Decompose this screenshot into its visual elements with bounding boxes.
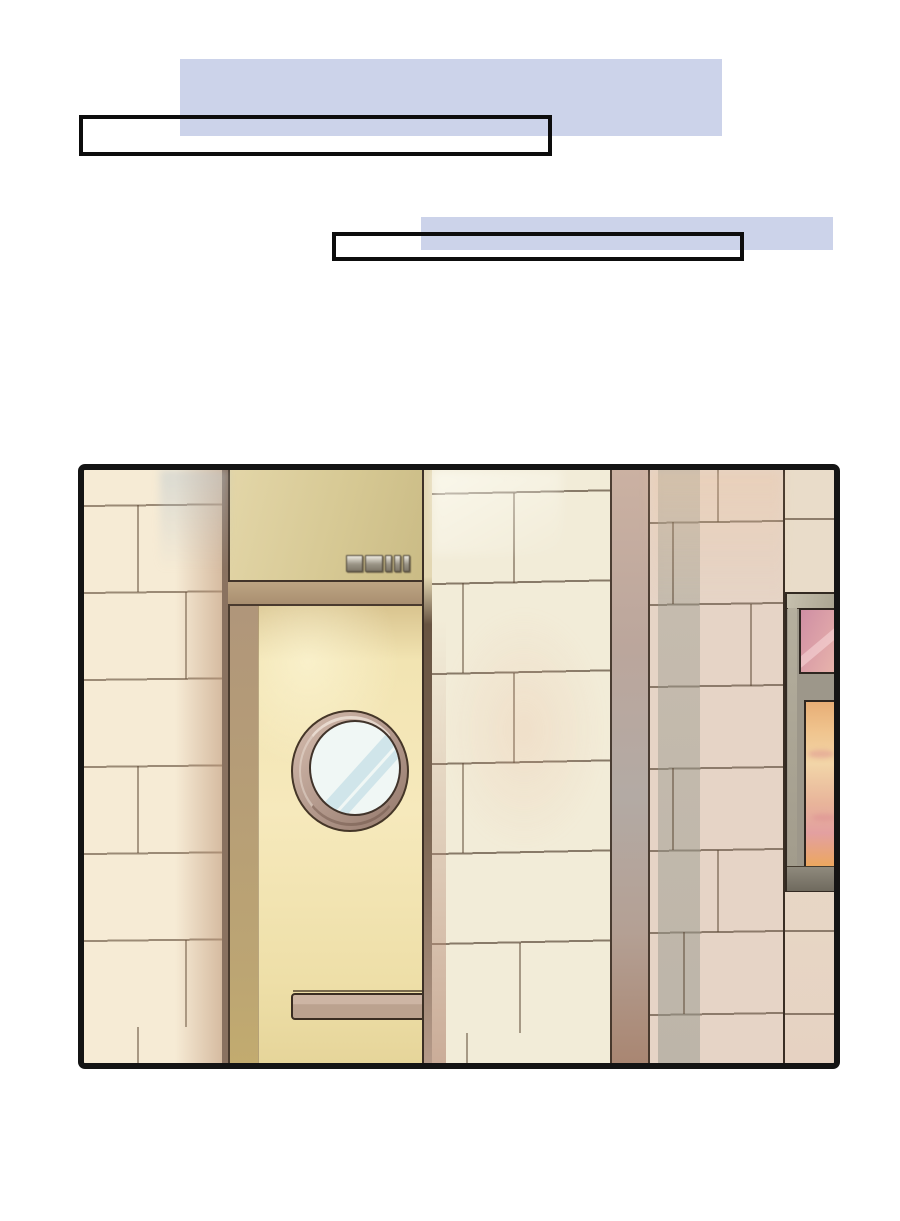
poster-pink	[799, 608, 836, 674]
tile-joint	[462, 583, 464, 673]
speech-bubble-2	[332, 232, 744, 261]
door-frame-left-jamb	[228, 606, 258, 1063]
poster-reflection	[799, 609, 836, 667]
tile-joint	[137, 766, 139, 853]
sign-glyph	[403, 555, 410, 572]
tile-line	[785, 518, 836, 520]
poster-cloud	[808, 750, 834, 758]
poster-sunset	[804, 700, 838, 868]
porthole-window	[309, 720, 401, 816]
tiled-wall-left	[84, 470, 228, 1063]
display-frame	[785, 592, 836, 892]
wall-right-column	[783, 470, 834, 1063]
tile-joint	[462, 763, 464, 853]
speech-bubble-2-text	[336, 236, 740, 257]
door-frame-right-post	[422, 470, 432, 1063]
display-frame-top-bevel	[787, 594, 836, 609]
speech-bubble-1-text	[83, 119, 548, 152]
comic-panel	[78, 464, 840, 1069]
tile-joint	[683, 932, 685, 1014]
display-frame-bottom-bevel	[787, 866, 836, 891]
tile-joint	[513, 493, 515, 583]
sign-glyph	[385, 555, 392, 572]
tile-joint	[672, 768, 674, 850]
porthole-ring	[291, 710, 409, 832]
speech-bubble-1	[79, 115, 552, 156]
tile-joint	[672, 522, 674, 604]
door-frame-header	[228, 580, 432, 606]
display-frame-left-bevel	[788, 608, 797, 866]
tile-line	[785, 1013, 836, 1015]
tile-joint	[717, 470, 719, 522]
door	[258, 606, 422, 1063]
door-bay	[228, 470, 432, 1063]
tile-joint	[466, 1033, 468, 1063]
tile-joint	[519, 943, 521, 1033]
tile-joint	[513, 673, 515, 763]
tile-joint	[717, 850, 719, 932]
tile-joint	[137, 505, 139, 592]
sign-glyph	[346, 555, 363, 572]
wall-corner-shadow	[432, 470, 446, 1063]
tiled-wall-right	[650, 470, 783, 1063]
tile-joint	[750, 604, 752, 686]
sign-glyph	[394, 555, 401, 572]
door-sign	[346, 553, 418, 574]
poster-cloud	[812, 814, 836, 821]
tiled-wall-middle	[432, 470, 610, 1063]
wall-shadow-strip	[175, 470, 222, 1063]
tile-line	[785, 930, 836, 932]
tile-joint	[137, 1027, 139, 1063]
wall-corner-pillar	[610, 470, 650, 1063]
sign-glyph	[365, 555, 383, 572]
wall-shade-band	[658, 470, 700, 1063]
